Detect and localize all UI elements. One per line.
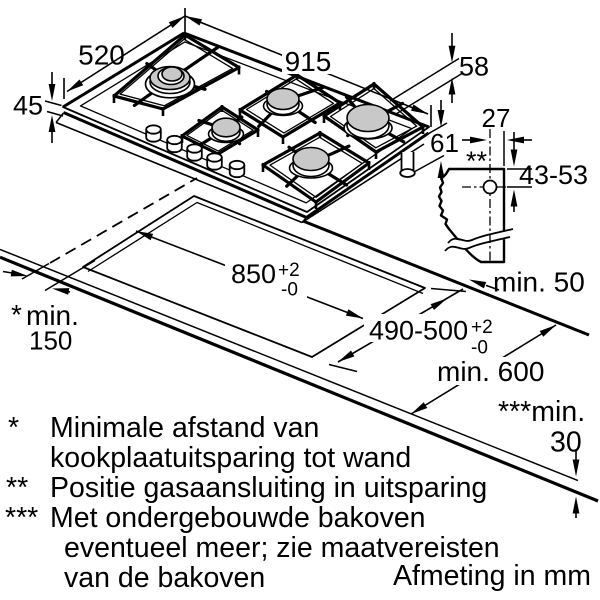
svg-text:*: * bbox=[8, 412, 19, 444]
svg-text:30: 30 bbox=[550, 427, 582, 459]
svg-text:850: 850 bbox=[231, 259, 276, 289]
svg-text:43-53: 43-53 bbox=[519, 160, 588, 190]
svg-text:-0: -0 bbox=[281, 280, 298, 301]
svg-text:Minimale afstand van: Minimale afstand van bbox=[50, 412, 319, 444]
svg-text:min. 50: min. 50 bbox=[493, 267, 585, 298]
svg-text:+2: +2 bbox=[471, 317, 493, 338]
svg-text:490-500: 490-500 bbox=[369, 316, 468, 346]
svg-text:27: 27 bbox=[482, 103, 511, 133]
svg-text:min. 600: min. 600 bbox=[437, 356, 544, 387]
svg-text:Met ondergebouwde bakoven: Met ondergebouwde bakoven bbox=[50, 502, 426, 534]
svg-text:**: ** bbox=[6, 472, 28, 504]
svg-text:150: 150 bbox=[29, 326, 72, 356]
svg-text:***min.: ***min. bbox=[498, 396, 585, 428]
svg-text:van de bakoven: van de bakoven bbox=[64, 562, 265, 594]
svg-text:520: 520 bbox=[78, 40, 125, 71]
svg-text:+2: +2 bbox=[278, 260, 300, 281]
svg-text:***: *** bbox=[5, 502, 38, 534]
svg-text:kookplaatuitsparing tot wand: kookplaatuitsparing tot wand bbox=[50, 442, 411, 474]
svg-text:*: * bbox=[11, 299, 22, 330]
svg-text:45: 45 bbox=[13, 91, 43, 121]
svg-text:**: ** bbox=[466, 146, 488, 176]
svg-text:61: 61 bbox=[430, 128, 459, 158]
svg-text:Positie gasaansluiting in uits: Positie gasaansluiting in uitsparing bbox=[50, 472, 487, 504]
svg-text:58: 58 bbox=[459, 52, 489, 82]
svg-text:Afmeting in mm: Afmeting in mm bbox=[393, 560, 591, 592]
svg-text:915: 915 bbox=[285, 46, 332, 77]
